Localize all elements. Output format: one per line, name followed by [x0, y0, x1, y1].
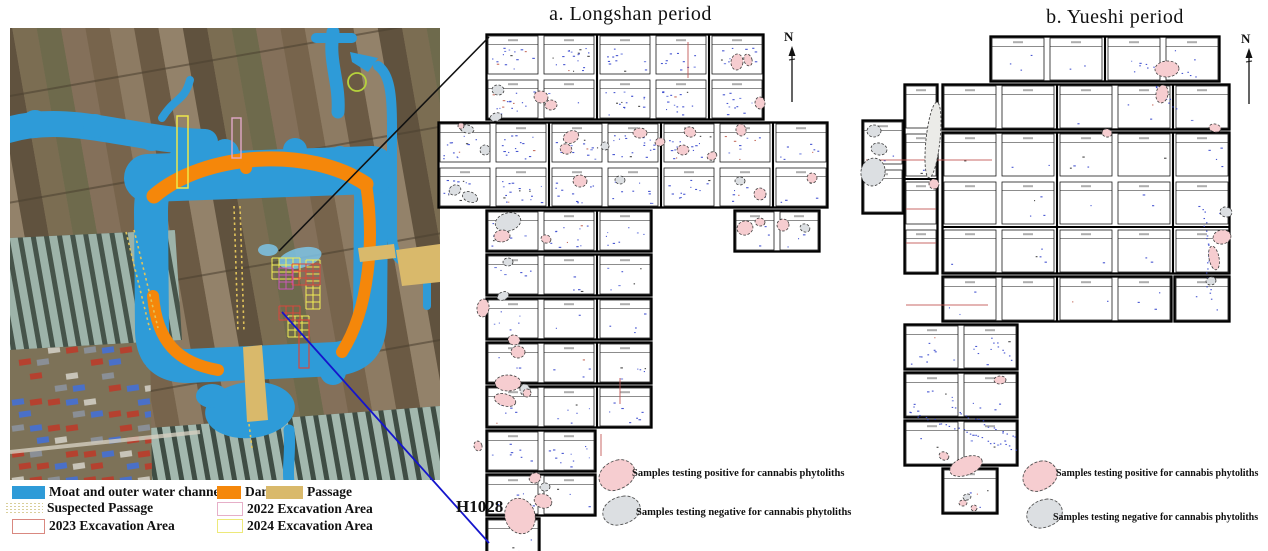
moat-swatch [12, 486, 45, 499]
legend-positive-label-b: Samples testing positive for cannabis ph… [1056, 468, 1258, 479]
legend-item-2024-area: 2024 Excavation Area [217, 518, 373, 534]
feature-label-h1028: H1028 [456, 497, 503, 517]
legend-item-dam: Dam [217, 484, 273, 500]
figure-canvas: a. Longshan period b. Yueshi period N N … [0, 0, 1268, 551]
legend-negative-label-b: Samples testing negative for cannabis ph… [1053, 512, 1258, 523]
excavation-2024-swatch [217, 519, 243, 533]
panel-b-title: b. Yueshi period [1000, 6, 1230, 29]
north-arrow-icon [789, 46, 796, 102]
legend-item-passage: Passage [266, 484, 352, 500]
excavation-2022-swatch [217, 502, 243, 516]
legend-label: Suspected Passage [47, 500, 153, 516]
excavation-2023-swatch [12, 519, 45, 534]
legend-item-moat: Moat and outer water channel [12, 484, 223, 500]
legend-label: 2024 Excavation Area [247, 518, 373, 534]
north-label-b: N [1241, 31, 1250, 47]
legend-label: Passage [307, 484, 352, 500]
yueshi-grid [858, 36, 1233, 514]
legend-item-suspected-passage: Suspected Passage [5, 500, 153, 516]
legend-label: Moat and outer water channel [49, 484, 223, 500]
north-arrow-icon [1246, 48, 1253, 104]
legend-label: 2023 Excavation Area [49, 518, 175, 534]
suspected-passage-swatch [5, 502, 43, 514]
legend-item-2022-area: 2022 Excavation Area [217, 501, 373, 517]
legend-negative-label-a: Samples testing negative for cannabis ph… [636, 507, 851, 518]
panel-a-title: a. Longshan period [513, 3, 748, 26]
legend-label: 2022 Excavation Area [247, 501, 373, 517]
north-label-a: N [784, 29, 793, 45]
legend-item-2023-area: 2023 Excavation Area [12, 518, 175, 534]
dam-swatch [217, 486, 241, 499]
passage-swatch [266, 486, 303, 499]
legend-positive-label-a: Samples testing positive for cannabis ph… [632, 468, 844, 479]
